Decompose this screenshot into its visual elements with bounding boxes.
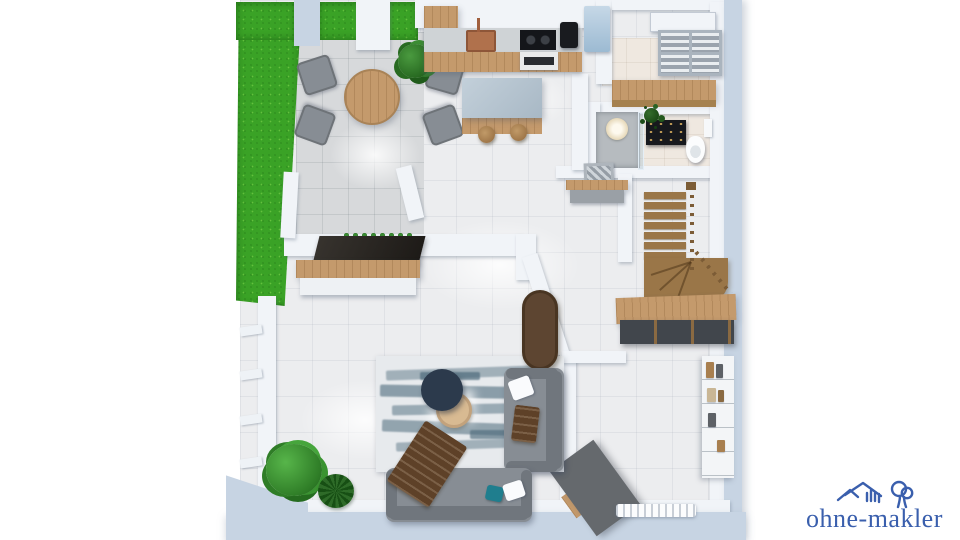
oven: [520, 52, 558, 70]
watermark-logo: ohne-makler: [800, 478, 956, 536]
wall-segment-grass: [294, 0, 320, 46]
book: [718, 390, 724, 402]
bathroom-plant: [644, 108, 659, 123]
stair-tread: [644, 202, 686, 209]
stair-balusters: [690, 186, 694, 270]
sofa-right-backrest: [546, 371, 562, 469]
tv-sideboard-body: [300, 278, 416, 295]
utility-cabinet: [650, 12, 716, 32]
study-top-wall: [562, 351, 626, 363]
sofa-right-armrest: [506, 368, 558, 379]
coffee-table-navy: [421, 369, 463, 411]
potted-plant-palm: [318, 474, 354, 508]
hall-sideboard-long: [612, 80, 716, 102]
under-stair-sideboard-front: [620, 320, 734, 344]
stair-tread: [644, 192, 686, 199]
cooktop: [520, 30, 556, 50]
round-dining-table: [344, 69, 400, 125]
shower-glass: [638, 112, 644, 170]
stair-tread: [644, 212, 686, 219]
book: [708, 413, 716, 427]
stair-tread: [644, 232, 686, 239]
bar-stool: [478, 126, 495, 143]
book: [707, 388, 716, 402]
book: [716, 364, 723, 378]
kitchen-island: [462, 78, 542, 118]
wall-top-right: [612, 0, 724, 10]
bathroom-vanity: [646, 120, 686, 145]
brown-throw-small: [511, 405, 540, 444]
stair-tread: [644, 222, 686, 229]
corridor-wall: [572, 74, 588, 170]
stair-railing: [686, 182, 696, 190]
coffee-machine: [560, 22, 578, 48]
kitchen-counter-front: [424, 52, 582, 72]
oval-console: [522, 290, 558, 370]
book: [717, 440, 725, 452]
wall-segment-top: [356, 0, 390, 50]
lawn-top-left: [236, 2, 296, 40]
faucet-icon: [477, 18, 480, 32]
bar-stool: [510, 124, 527, 141]
wardrobe-shelf-cell: [661, 33, 689, 52]
kitchen-counter-top: [424, 28, 582, 54]
shower-tray-round: [606, 118, 628, 140]
floor-plan-render: ohne-makler: [0, 0, 960, 540]
logo-text: ohne-makler: [806, 504, 943, 534]
fridge: [584, 6, 610, 52]
potted-plant-large: [266, 444, 322, 496]
hall-bench-body: [570, 190, 624, 203]
wardrobe-shelf-cell: [692, 55, 720, 74]
house-icon: [838, 483, 881, 502]
open-wardrobe: [658, 30, 722, 76]
sofa-bottom-backrest: [389, 506, 529, 520]
radiator: [616, 504, 696, 517]
book: [706, 362, 714, 378]
tv-sideboard-top: [296, 260, 420, 278]
towel: [704, 119, 712, 137]
kitchen-sink: [466, 30, 496, 52]
wardrobe-shelf-cell: [661, 55, 689, 74]
toilet: [686, 136, 705, 163]
stair-tread: [644, 242, 686, 249]
wardrobe-shelf-cell: [692, 33, 720, 52]
hall-bench-top: [566, 180, 628, 190]
hall-sideboard-long-front: [612, 100, 716, 107]
